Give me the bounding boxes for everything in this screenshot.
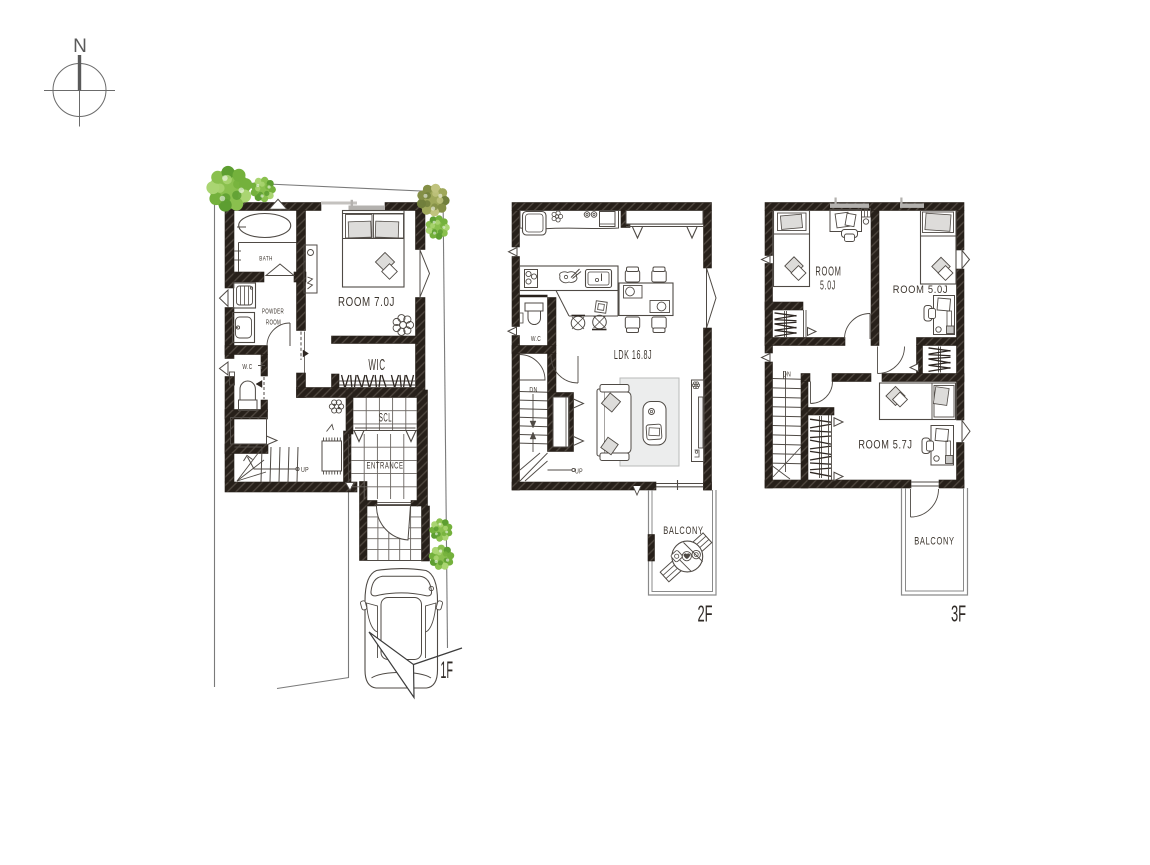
svg-text:1F: 1F (440, 656, 453, 683)
svg-text:BALCONY: BALCONY (914, 534, 954, 547)
svg-text:2F: 2F (697, 602, 712, 628)
svg-text:SCL: SCL (379, 411, 392, 425)
svg-text:ROOM: ROOM (815, 264, 841, 279)
svg-text:BALCONY: BALCONY (663, 523, 703, 536)
svg-text:POWDER: POWDER (262, 309, 284, 316)
svg-text:DN: DN (783, 371, 791, 379)
svg-text:ROOM 5.7J: ROOM 5.7J (858, 440, 912, 452)
svg-text:BATH: BATH (259, 256, 273, 263)
svg-text:ENTRANCE: ENTRANCE (367, 460, 404, 471)
svg-text:LDK 16.8J: LDK 16.8J (614, 349, 652, 363)
svg-text:UP: UP (301, 466, 309, 474)
svg-text:W.C: W.C (242, 364, 252, 371)
svg-text:5.0J: 5.0J (820, 280, 836, 294)
svg-text:ROOM 5.0J: ROOM 5.0J (893, 284, 948, 296)
svg-text:3F: 3F (951, 602, 966, 628)
svg-text:W.C: W.C (531, 336, 541, 343)
svg-text:WIC: WIC (368, 356, 385, 374)
svg-text:UP: UP (575, 468, 583, 476)
svg-text:ROOM 7.0J: ROOM 7.0J (338, 296, 395, 309)
svg-text:DN: DN (529, 386, 537, 394)
svg-text:N: N (73, 36, 87, 57)
